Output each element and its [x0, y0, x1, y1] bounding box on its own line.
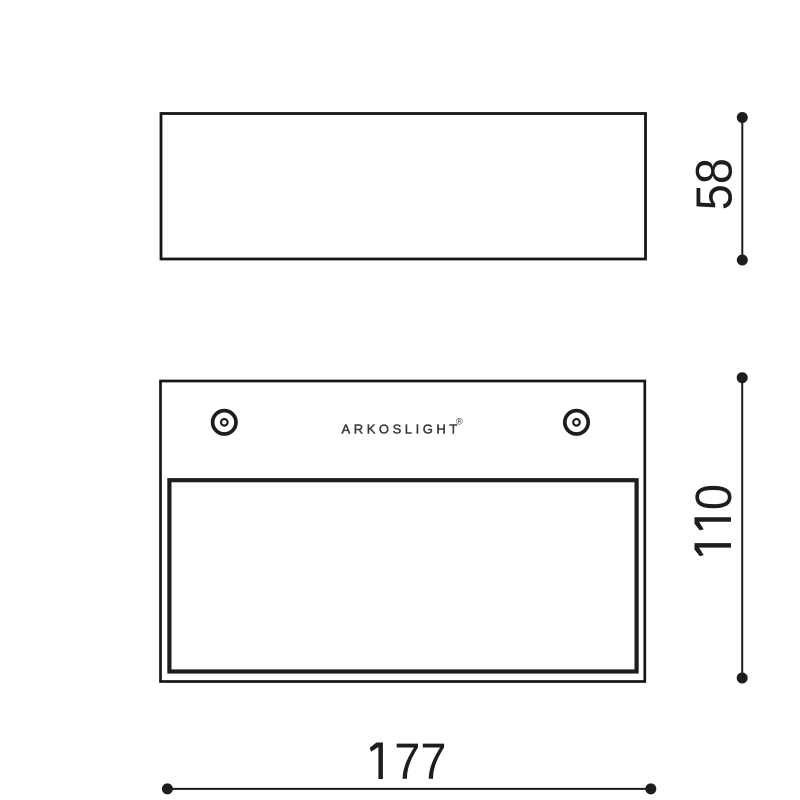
- svg-text:58: 58: [687, 158, 743, 210]
- svg-text:®: ®: [456, 417, 463, 427]
- svg-text:ARKOSLIGHT: ARKOSLIGHT: [342, 421, 461, 436]
